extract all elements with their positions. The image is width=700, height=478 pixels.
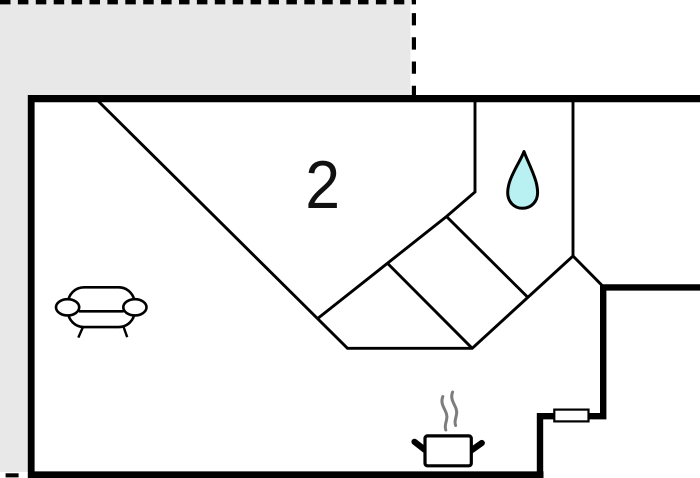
svg-text:2: 2 [305, 146, 340, 222]
